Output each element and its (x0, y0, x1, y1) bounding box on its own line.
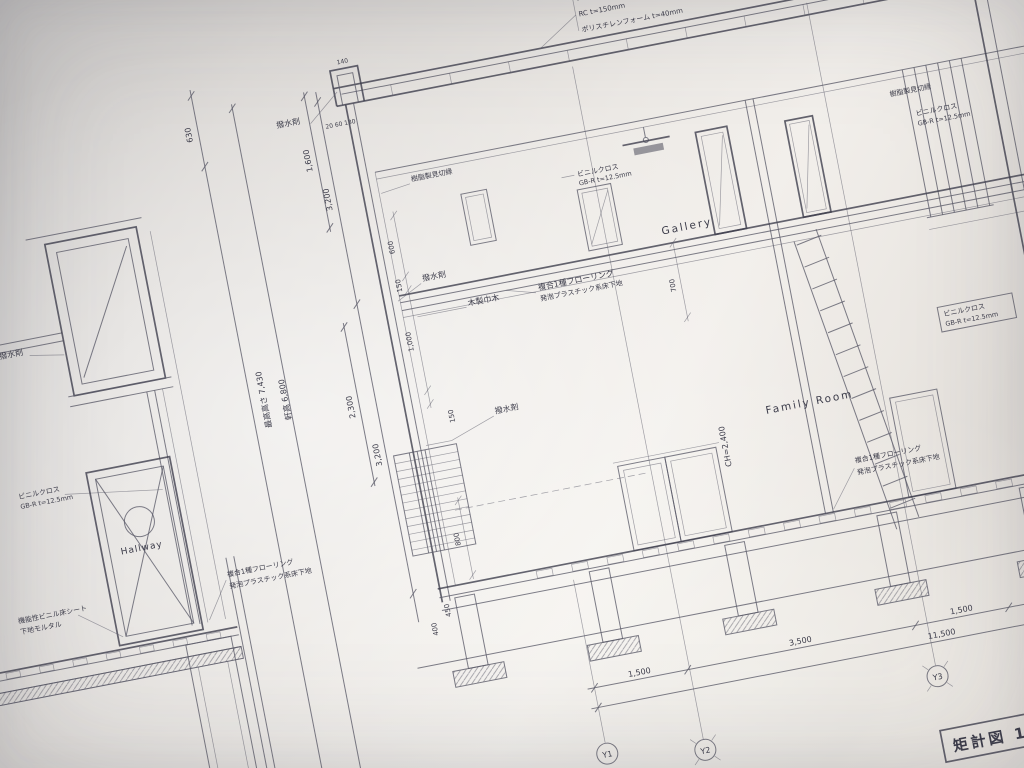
asphalt-spec-label: RC t=150mm (578, 2, 626, 19)
resin-edge-label-right: 樹脂製見切縁 (889, 82, 932, 99)
main-section-drawing: 140 20 60 130 アスファルト防水 RC t=150mm ポリスチレン… (262, 0, 1024, 768)
hallway-room-label: Hallway (120, 540, 164, 558)
resin-edge-label-left: 樹脂製見切縁 (410, 167, 453, 184)
family-room-label: Family Room (765, 388, 855, 417)
door-circle-symbol (122, 504, 157, 539)
max-height-label: 最高高さ 7,430 (253, 371, 274, 429)
water-repellent-label-gallery: 撥水剤 (421, 269, 446, 283)
dim-400: 400 (430, 622, 440, 637)
dim-parapet-small: 20 60 130 (325, 118, 356, 131)
left-wall-section-drawing: 撥水剤 ビニルクロス GB-R t=12.5mm Hallway (0, 199, 364, 768)
eaves-height-label: 軒高 6,800 (276, 378, 294, 421)
dim-140: 140 (336, 57, 349, 66)
dim-1000: 1,000 (404, 331, 416, 352)
dim-1600: 1,600 (302, 149, 315, 173)
blueprint-photo: 630 最高高さ 7,430 軒高 6,800 1,600 3,200 3,20… (0, 0, 1024, 768)
mortar-hatch-band (0, 647, 243, 708)
dim-3200-lower: 3,200 (371, 443, 384, 467)
water-repellent-label-roof: 撥水剤 (275, 116, 300, 130)
dim-630: 630 (183, 127, 195, 144)
asphalt-label: アスファルト防水 (575, 0, 640, 3)
ceiling-fan-icon (620, 123, 672, 158)
grid-label-y2: Y2 (699, 745, 711, 756)
gallery-room-label: Gallery (661, 216, 714, 238)
bottom-dimension-lines: 1,500 3,500 1,500 11,500 (586, 567, 1024, 712)
dim-3200-upper: 3,200 (321, 188, 334, 212)
dim-700: 700 (668, 278, 678, 293)
gallery-window-left (577, 184, 622, 251)
water-repellent-label-lower: 撥水剤 (494, 401, 519, 415)
dim-2300: 2,300 (344, 395, 357, 419)
section-drawing-sheet: 630 最高高さ 7,430 軒高 6,800 1,600 3,200 3,20… (0, 0, 1024, 768)
dim-600: 600 (387, 240, 397, 255)
dim-150-b: 150 (447, 409, 457, 424)
grid-markers: Y1 Y2 Y3 (464, 0, 959, 768)
main-foundations (439, 481, 1024, 687)
upper-niche-window (461, 189, 496, 245)
interior-wall-tall (745, 99, 833, 514)
louver-vent (394, 444, 476, 556)
first-floor-assembly (438, 453, 1024, 610)
water-repellent-label-left: 撥水剤 (0, 347, 24, 361)
title-block: 矩計図 1/50 (940, 700, 1024, 762)
grid-label-y1: Y1 (601, 749, 613, 760)
grid-label-y3: Y3 (931, 672, 943, 683)
gallery-window-right (785, 116, 831, 218)
right-hatched-window (898, 40, 1024, 229)
ceiling-height-label: CH=2,400 (717, 425, 734, 467)
